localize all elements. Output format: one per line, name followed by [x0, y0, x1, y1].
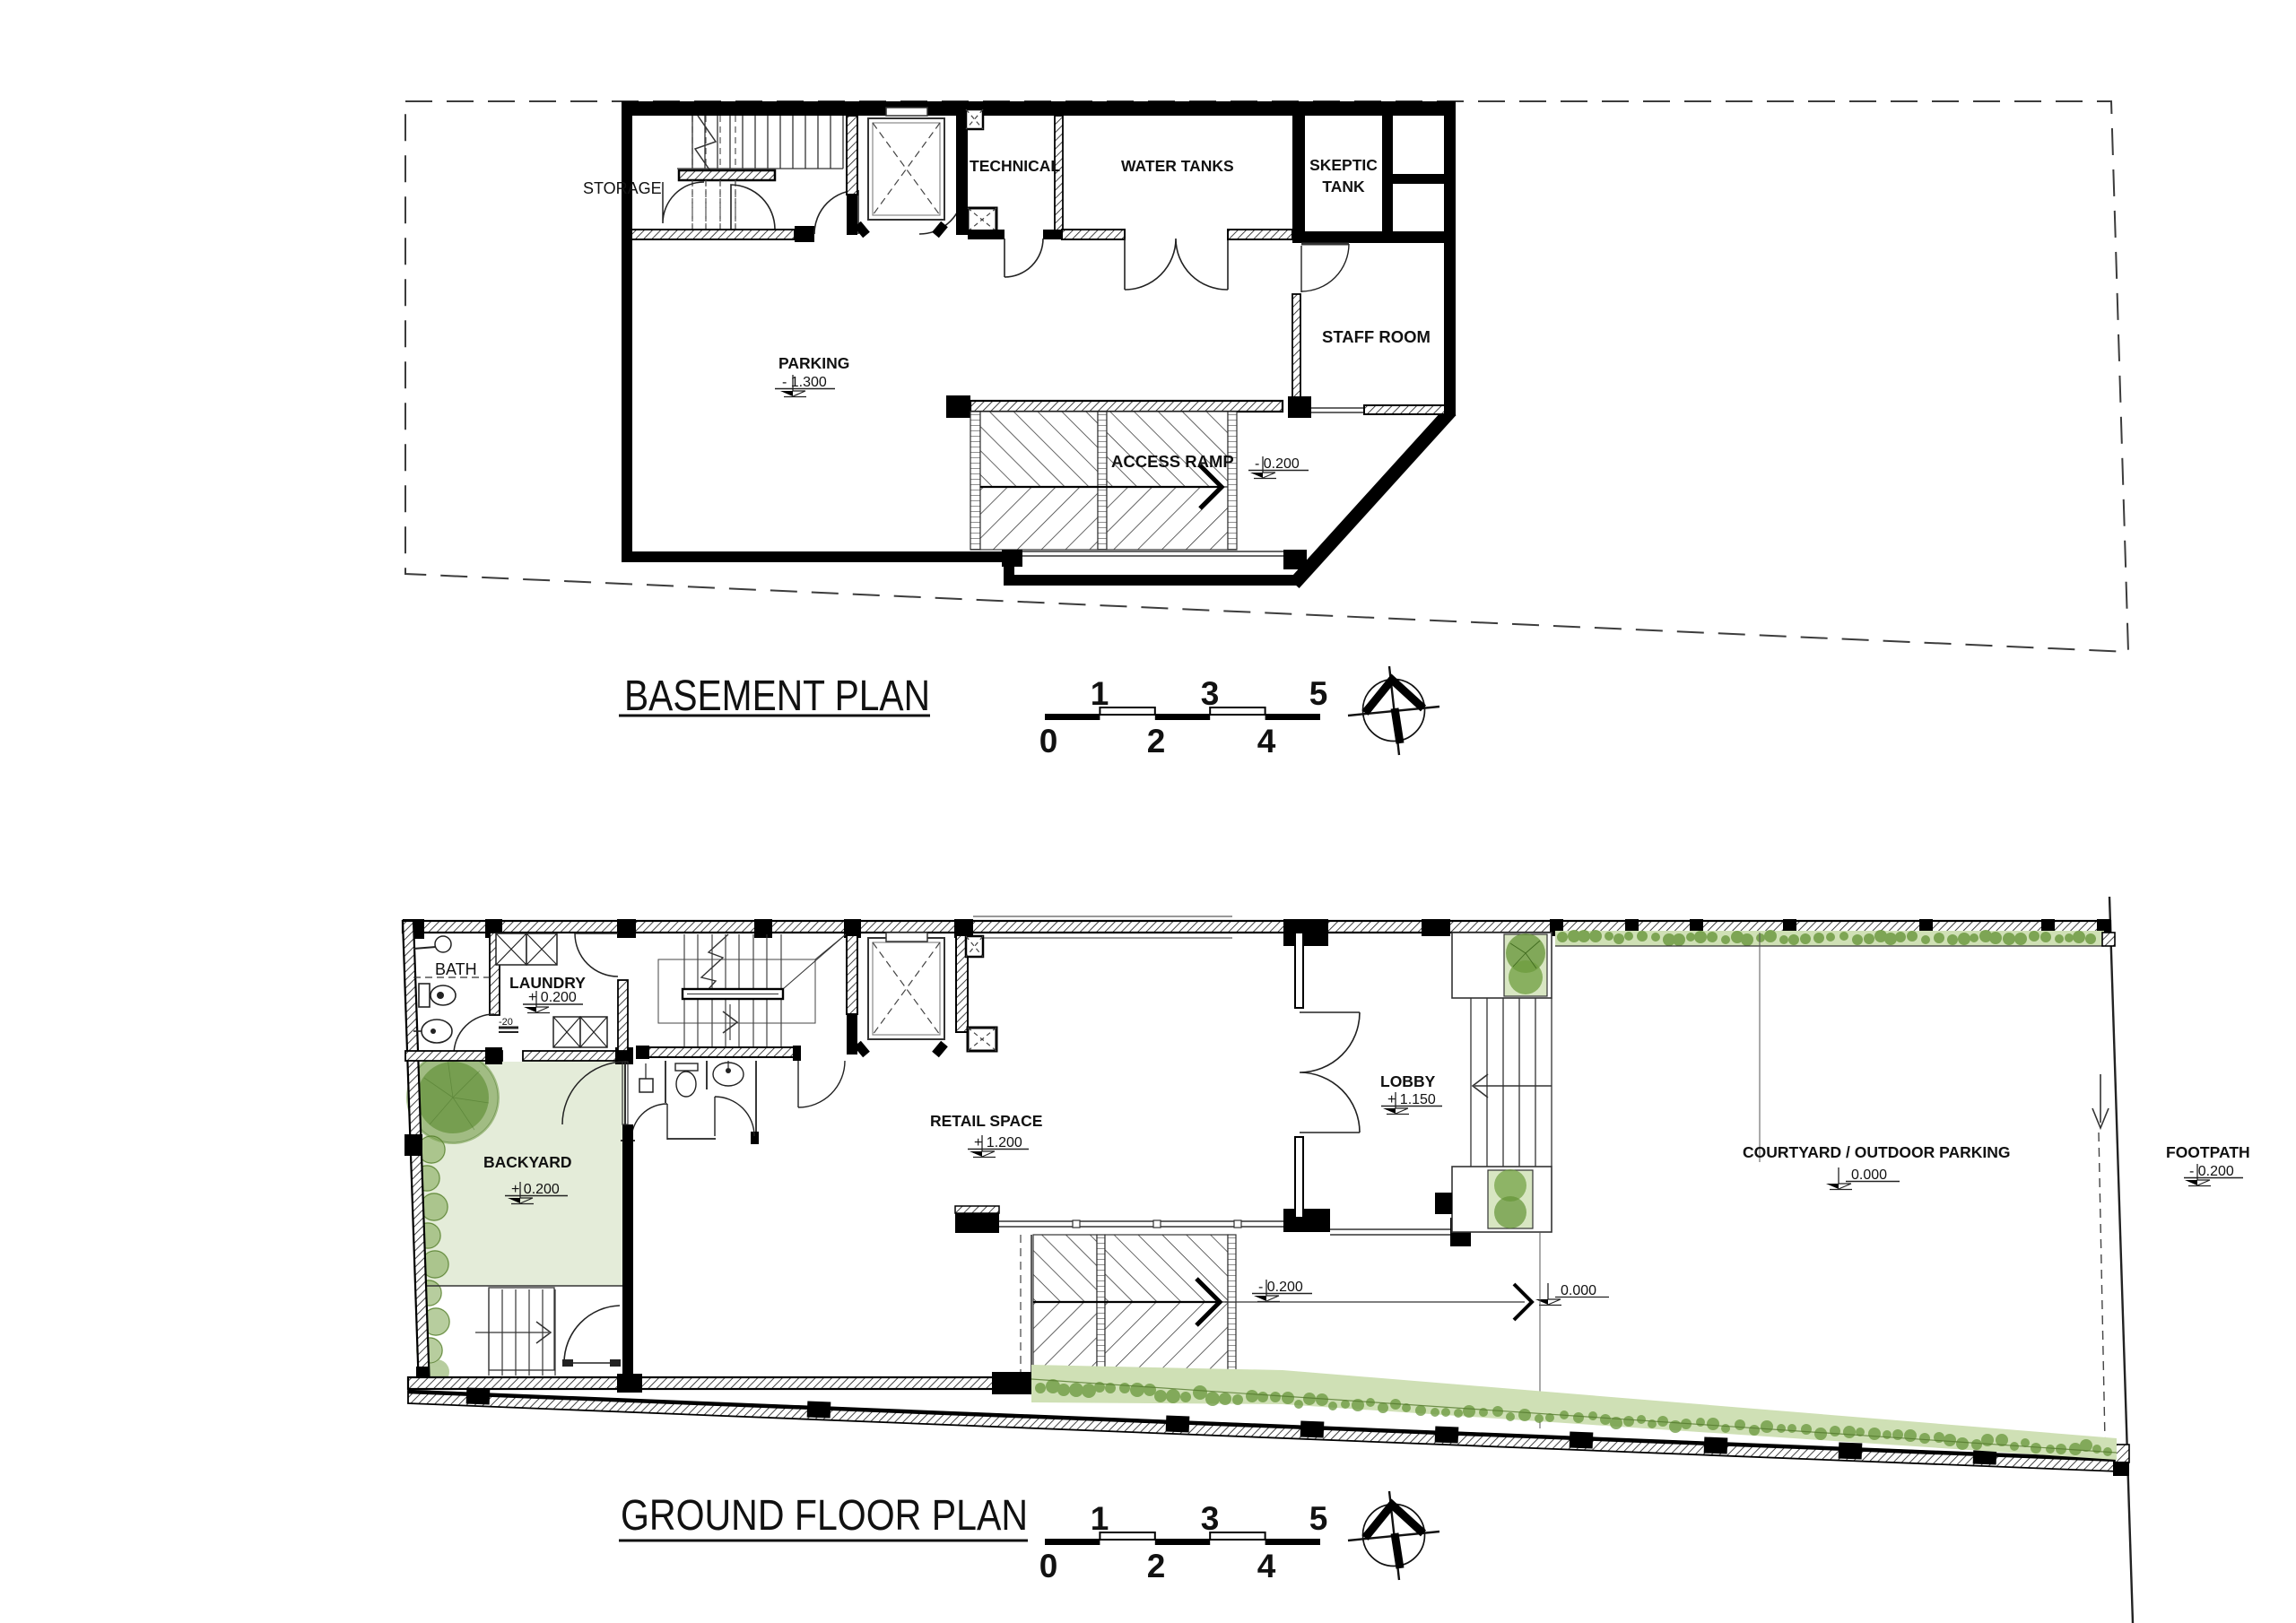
svg-text:- 0.200: - 0.200: [1258, 1280, 1303, 1295]
svg-text:+ 0.200: + 0.200: [528, 990, 577, 1005]
svg-text:GROUND FLOOR PLAN: GROUND FLOOR PLAN: [621, 1492, 1028, 1540]
svg-text:0.000: 0.000: [1851, 1167, 1887, 1183]
svg-text:ACCESS RAMP: ACCESS RAMP: [1111, 452, 1234, 471]
svg-text:LOBBY: LOBBY: [1380, 1072, 1436, 1090]
svg-text:+ 1.200: + 1.200: [974, 1135, 1022, 1150]
svg-text:PARKING: PARKING: [778, 354, 849, 372]
svg-text:+ 1.150: + 1.150: [1387, 1092, 1436, 1107]
svg-text:- 1.300: - 1.300: [782, 375, 827, 390]
svg-text:BACKYARD: BACKYARD: [483, 1153, 572, 1171]
svg-text:LAUNDRY: LAUNDRY: [509, 974, 586, 992]
svg-text:0.000: 0.000: [1561, 1283, 1596, 1298]
svg-text:BASEMENT PLAN: BASEMENT PLAN: [624, 673, 930, 720]
svg-text:FOOTPATH: FOOTPATH: [2166, 1143, 2250, 1161]
svg-text:COURTYARD / OUTDOOR PARKING: COURTYARD / OUTDOOR PARKING: [1743, 1143, 2010, 1161]
svg-text:TECHNICAL: TECHNICAL: [970, 157, 1060, 175]
svg-text:STORAGE: STORAGE: [583, 179, 662, 197]
svg-text:-20: -20: [499, 1017, 513, 1028]
svg-text:STAFF ROOM: STAFF ROOM: [1322, 327, 1431, 346]
svg-text:RETAIL SPACE: RETAIL SPACE: [930, 1112, 1042, 1130]
svg-text:WATER TANKS: WATER TANKS: [1121, 157, 1234, 175]
svg-text:BATH: BATH: [435, 960, 477, 978]
svg-text:+ 0.200: + 0.200: [511, 1182, 560, 1197]
svg-text:- 0.200: - 0.200: [2189, 1164, 2234, 1179]
svg-text:- 0.200: - 0.200: [1255, 456, 1300, 472]
